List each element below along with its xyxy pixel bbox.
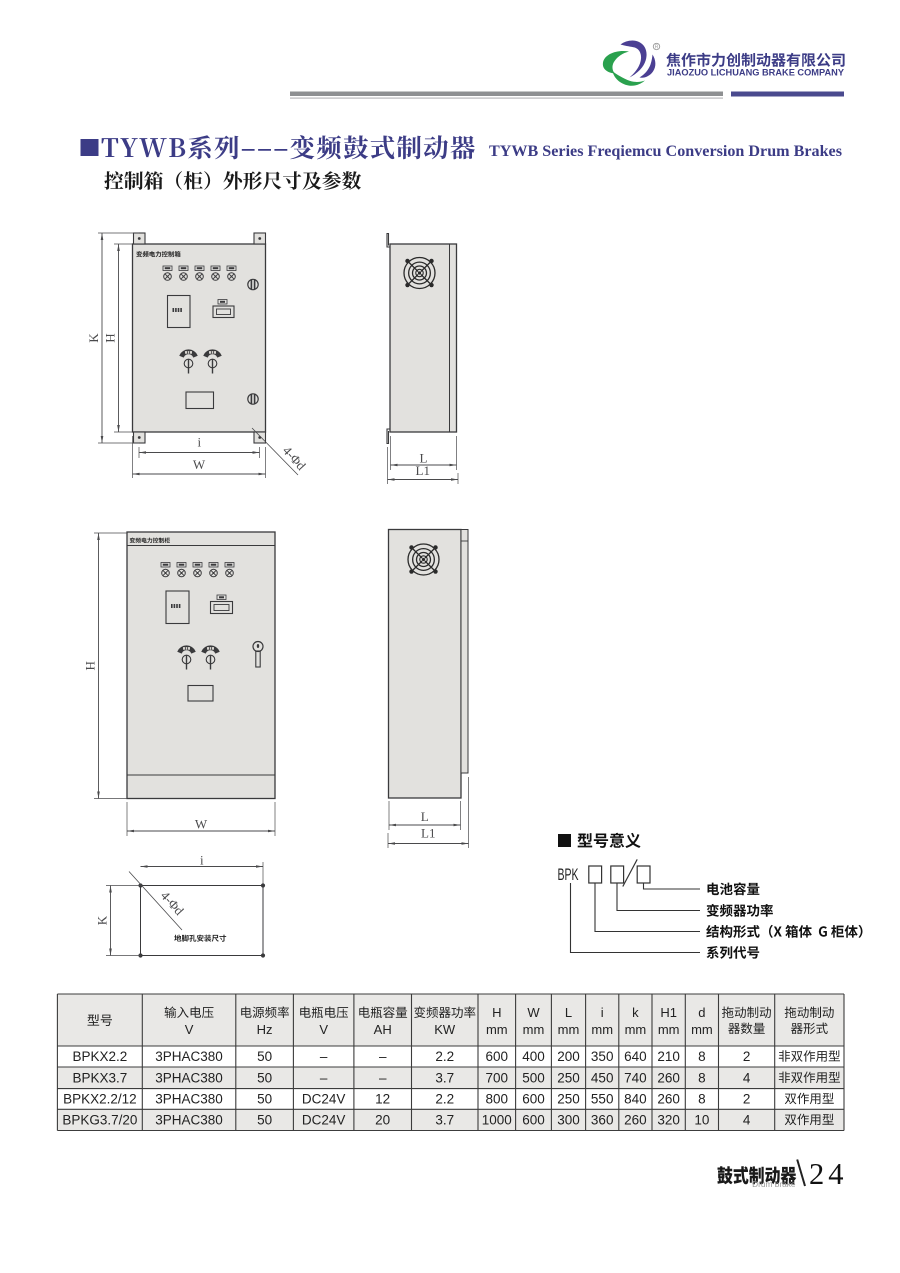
svg-text:Drum brake: Drum brake [752, 1179, 796, 1189]
svg-text:250: 250 [557, 1071, 580, 1086]
svg-text:10: 10 [694, 1113, 709, 1128]
svg-text:–: – [320, 1049, 328, 1064]
svg-text:mm: mm [486, 1022, 508, 1037]
svg-text:mm: mm [523, 1022, 545, 1037]
svg-text:i: i [200, 853, 204, 868]
svg-text:50: 50 [257, 1113, 272, 1128]
svg-text:–: – [379, 1049, 387, 1064]
svg-text:320: 320 [657, 1113, 680, 1128]
svg-text:250: 250 [557, 1092, 580, 1107]
svg-text:740: 740 [624, 1071, 647, 1086]
svg-text:3.7: 3.7 [435, 1113, 454, 1128]
svg-text:BPKG3.7/20: BPKG3.7/20 [62, 1113, 137, 1128]
svg-text:–: – [320, 1071, 328, 1086]
svg-text:8: 8 [698, 1092, 706, 1107]
svg-text:3.7: 3.7 [435, 1071, 454, 1086]
svg-text:H: H [492, 1005, 501, 1020]
svg-text:700: 700 [486, 1071, 509, 1086]
svg-text:L1: L1 [416, 463, 430, 478]
svg-text:12: 12 [375, 1092, 390, 1107]
svg-text:300: 300 [557, 1113, 580, 1128]
svg-text:H1: H1 [660, 1005, 677, 1020]
svg-text:360: 360 [591, 1113, 614, 1128]
svg-text:DC24V: DC24V [302, 1113, 346, 1128]
svg-text:mm: mm [691, 1022, 713, 1037]
svg-text:50: 50 [257, 1049, 272, 1064]
svg-text:AH: AH [374, 1022, 392, 1037]
svg-text:W: W [195, 817, 208, 832]
svg-text:TYWB Series Freqiemcu Conversi: TYWB Series Freqiemcu Conversion Drum Br… [489, 143, 842, 160]
svg-text:200: 200 [557, 1049, 580, 1064]
svg-text:BPKX2.2: BPKX2.2 [72, 1049, 127, 1064]
svg-text:–: – [379, 1071, 387, 1086]
svg-text:BPKX3.7: BPKX3.7 [72, 1071, 127, 1086]
svg-text:3PHAC380: 3PHAC380 [155, 1071, 223, 1086]
svg-text:2.2: 2.2 [435, 1049, 454, 1064]
svg-text:800: 800 [486, 1092, 509, 1107]
svg-text:8: 8 [698, 1071, 706, 1086]
svg-text:KW: KW [434, 1022, 456, 1037]
svg-text:260: 260 [657, 1092, 680, 1107]
svg-text:500: 500 [522, 1071, 545, 1086]
svg-text:260: 260 [624, 1113, 647, 1128]
svg-text:W: W [527, 1005, 540, 1020]
svg-text:260: 260 [657, 1071, 680, 1086]
svg-text:K: K [86, 333, 101, 343]
svg-text:24: 24 [809, 1157, 848, 1191]
svg-text:L1: L1 [421, 826, 435, 841]
svg-text:d: d [698, 1005, 705, 1020]
svg-text:50: 50 [257, 1092, 272, 1107]
svg-text:V: V [319, 1022, 328, 1037]
svg-text:JIAOZUO LICHUANG BRAKE COMPANY: JIAOZUO LICHUANG BRAKE COMPANY [667, 68, 845, 79]
svg-text:210: 210 [657, 1049, 680, 1064]
svg-text:2: 2 [743, 1049, 751, 1064]
svg-text:3PHAC380: 3PHAC380 [155, 1113, 223, 1128]
svg-text:BPKX2.2/12: BPKX2.2/12 [63, 1092, 137, 1107]
svg-text:k: k [632, 1005, 639, 1020]
svg-text:Hz: Hz [257, 1022, 273, 1037]
svg-text:mm: mm [658, 1022, 680, 1037]
svg-text:V: V [185, 1022, 194, 1037]
svg-text:L: L [421, 809, 429, 824]
svg-text:3PHAC380: 3PHAC380 [155, 1049, 223, 1064]
svg-text:mm: mm [591, 1022, 613, 1037]
svg-text:L: L [565, 1005, 572, 1020]
svg-text:8: 8 [698, 1049, 706, 1064]
svg-text:W: W [193, 457, 206, 472]
svg-text:600: 600 [522, 1092, 545, 1107]
svg-text:3PHAC380: 3PHAC380 [155, 1092, 223, 1107]
svg-text:4: 4 [743, 1071, 751, 1086]
svg-text:i: i [601, 1005, 604, 1020]
svg-text:20: 20 [375, 1113, 390, 1128]
svg-text:2: 2 [743, 1092, 751, 1107]
svg-text:640: 640 [624, 1049, 647, 1064]
svg-text:mm: mm [625, 1022, 647, 1037]
svg-text:4: 4 [743, 1113, 751, 1128]
svg-text:840: 840 [624, 1092, 647, 1107]
svg-text:350: 350 [591, 1049, 614, 1064]
svg-text:400: 400 [522, 1049, 545, 1064]
svg-text:550: 550 [591, 1092, 614, 1107]
svg-text:50: 50 [257, 1071, 272, 1086]
svg-text:600: 600 [522, 1113, 545, 1128]
svg-text:2.2: 2.2 [435, 1092, 454, 1107]
svg-text:R: R [655, 45, 659, 51]
svg-text:mm: mm [558, 1022, 580, 1037]
svg-text:1000: 1000 [482, 1113, 512, 1128]
svg-text:DC24V: DC24V [302, 1092, 346, 1107]
svg-text:i: i [197, 435, 201, 450]
svg-text:H: H [83, 661, 98, 670]
svg-text:K: K [95, 915, 110, 925]
svg-text:600: 600 [486, 1049, 509, 1064]
svg-text:BPK: BPK [558, 865, 579, 884]
svg-text:450: 450 [591, 1071, 614, 1086]
svg-text:H: H [103, 333, 118, 342]
